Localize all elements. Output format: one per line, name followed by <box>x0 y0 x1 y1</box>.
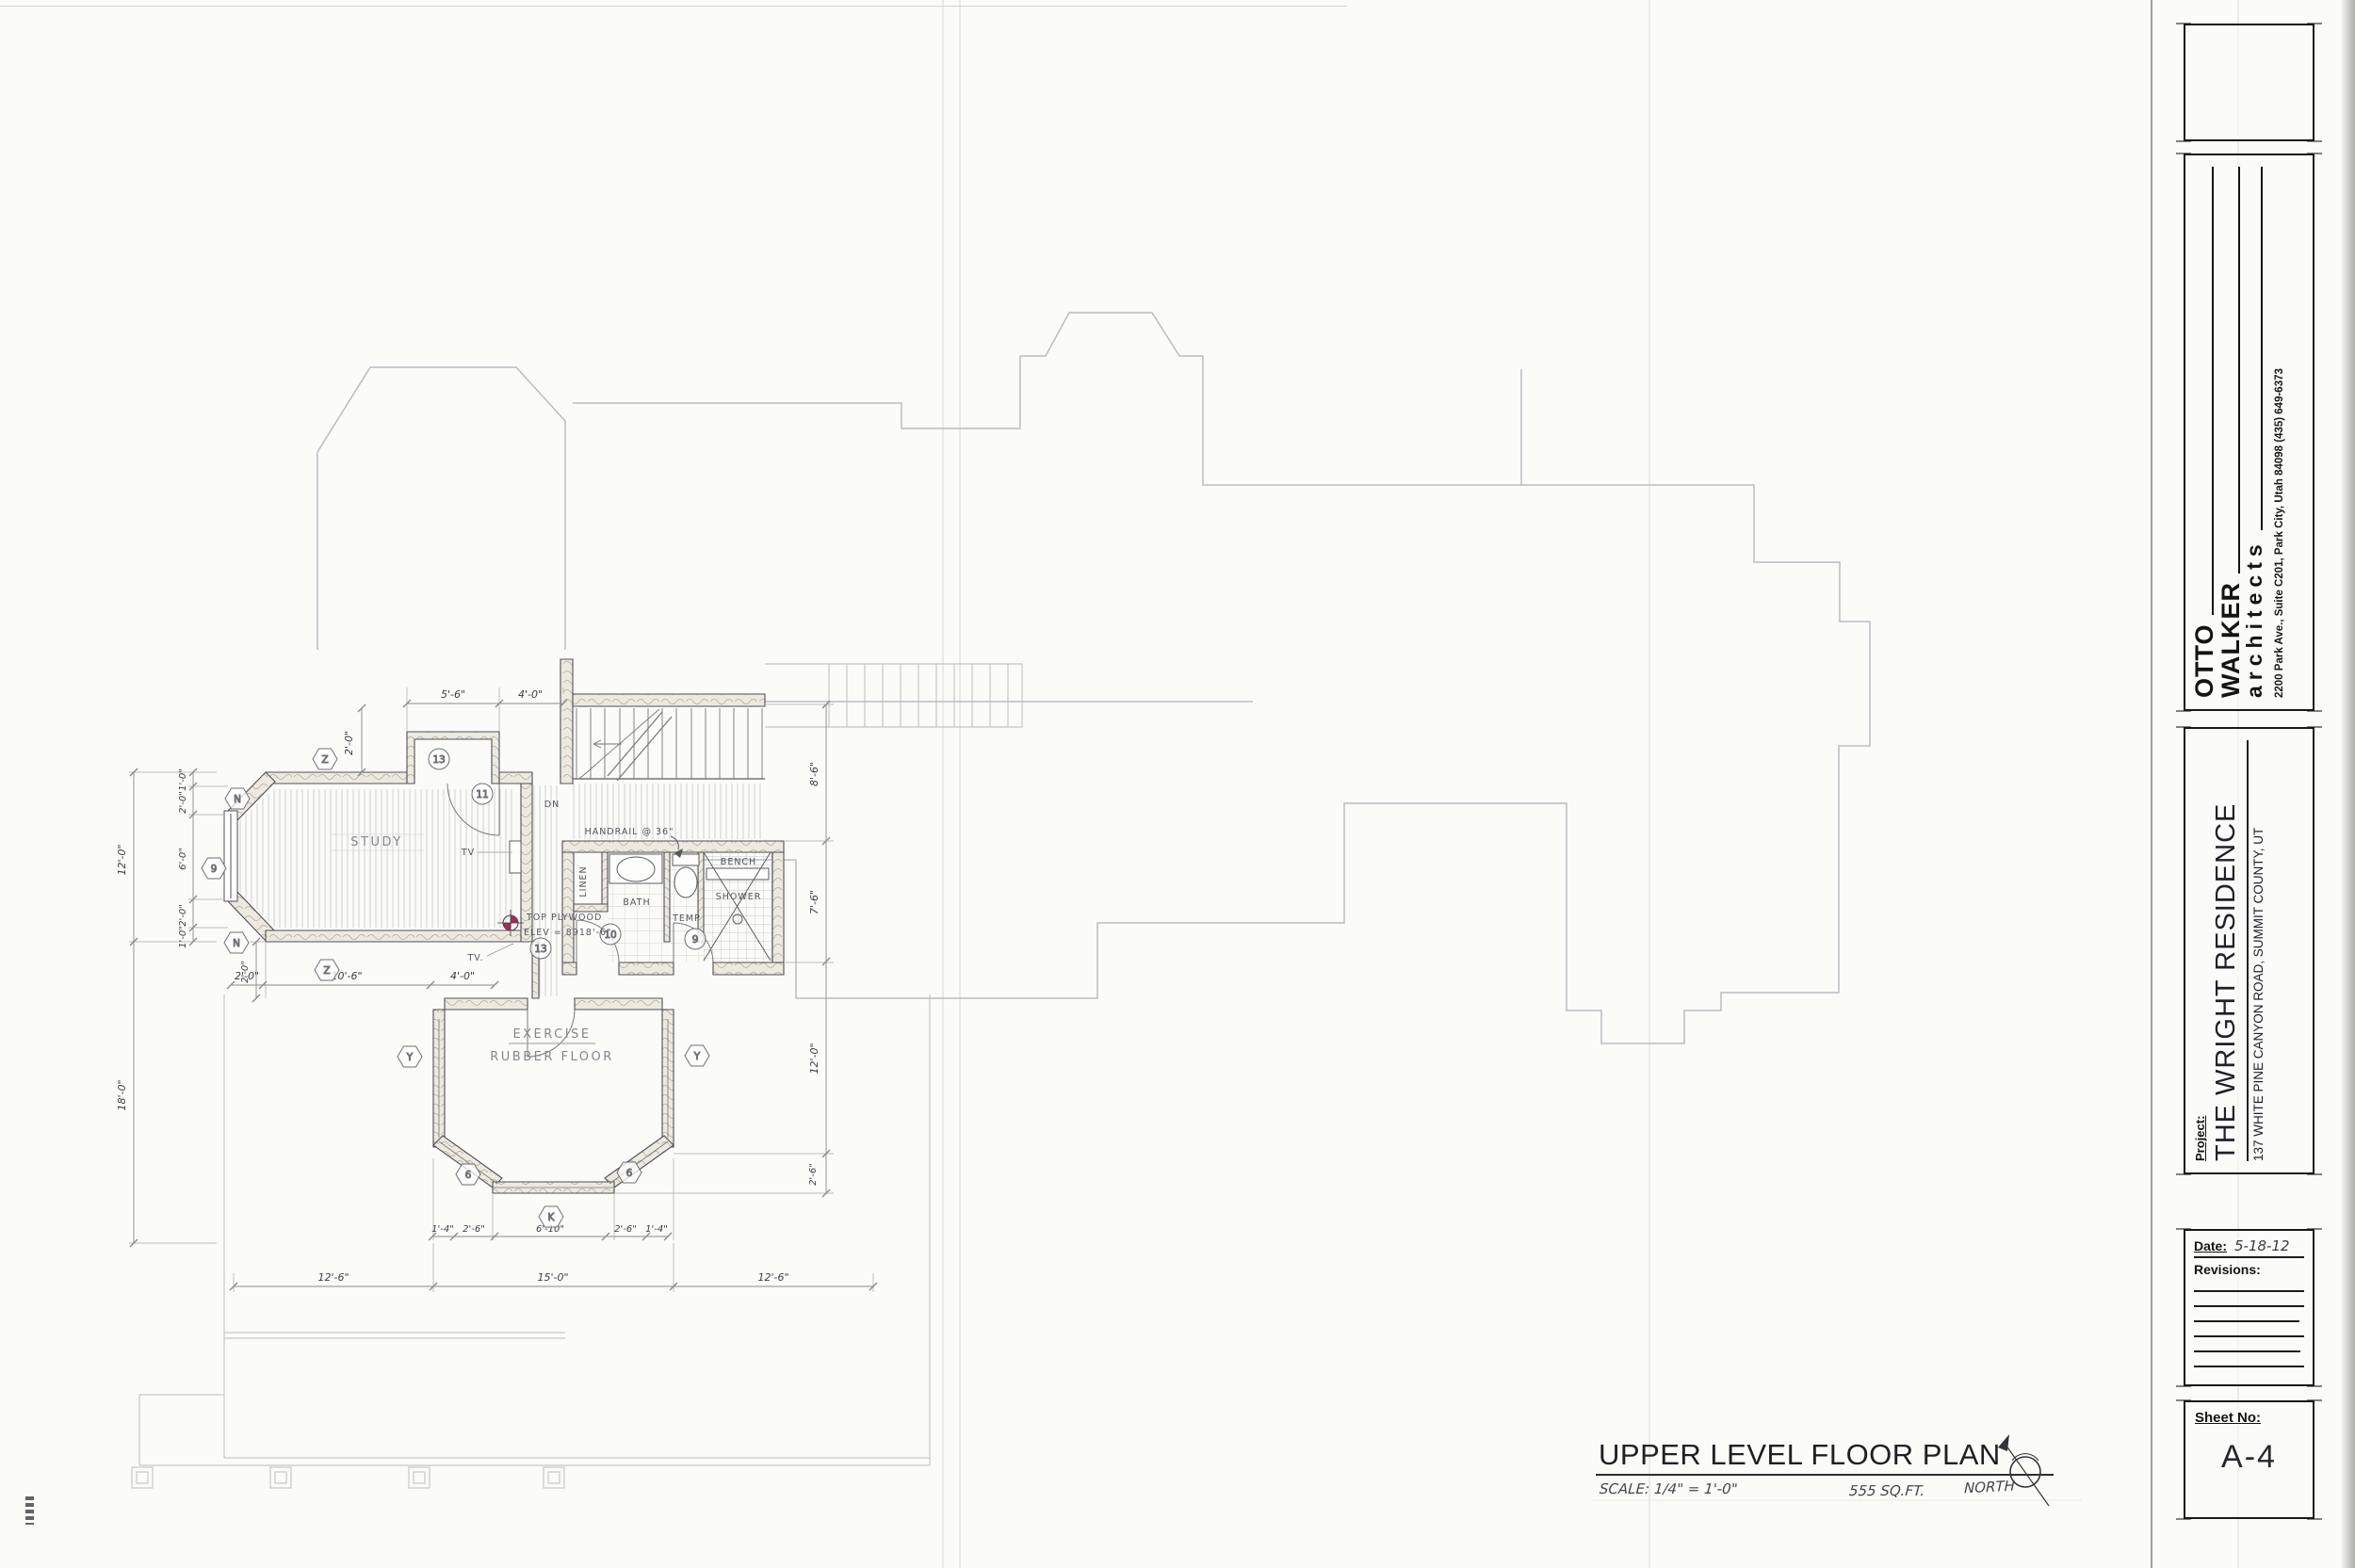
revision-line <box>2194 1337 2300 1352</box>
firm-rule <box>2212 167 2214 615</box>
dim-label: 2'-0" <box>343 731 355 755</box>
handrail-note: HANDRAIL @ 36" <box>585 827 674 837</box>
keynote-hex: K <box>548 1212 556 1223</box>
tv-niche <box>510 841 521 873</box>
area-note: 555 SQ.FT. <box>1848 1482 1925 1499</box>
scale-note: SCALE: 1/4" = 1'-0" <box>1599 1480 1738 1497</box>
dim-label: 15'-0" <box>537 1271 568 1284</box>
dim-label: 12'-6" <box>317 1271 349 1284</box>
dim-label: 4'-0" <box>518 688 543 701</box>
keynote-hex: 9 <box>211 864 218 875</box>
dim-label: 2'-6" <box>614 1224 637 1235</box>
north-label: NORTH <box>1964 1478 2015 1497</box>
dim-label: 1'-0" <box>178 926 188 948</box>
revisions-label: Revisions: <box>2194 1262 2304 1277</box>
tv-note: TV. <box>466 953 483 963</box>
linen-label: LINEN <box>578 865 589 897</box>
keynote-circle: 11 <box>476 789 488 800</box>
dim-label: 2'-0" <box>178 904 188 927</box>
room-label-bath: BATH <box>623 897 650 908</box>
keynote-circle: 13 <box>432 754 445 766</box>
floor-plan-drawing: 5'-6" 4'-0" 2'-0" 12'-0" 18'-0" 1'-0" 2'… <box>0 0 2355 1568</box>
titleblock-firm-box: OTTO WALKER architects 2200 Park Ave., S… <box>2184 154 2314 711</box>
firm-rule <box>2261 167 2263 530</box>
titleblock-stamp-box <box>2184 24 2314 141</box>
dim-label: 1'-0" <box>178 768 188 791</box>
dn-label: DN <box>544 800 560 810</box>
keynote-hex: Z <box>321 754 328 766</box>
dim-label: 12'-0" <box>116 844 128 875</box>
room-label-exercise-2: RUBBER FLOOR <box>490 1050 614 1064</box>
date-label: Date: <box>2194 1238 2227 1253</box>
sheet-no-value: A-4 <box>2195 1439 2303 1476</box>
drawing-sheet: 5'-6" 4'-0" 2'-0" 12'-0" 18'-0" 1'-0" 2'… <box>0 0 2355 1568</box>
elev-note-1: TOP PLYWOOD <box>526 913 602 923</box>
dim-label: 6'-0" <box>178 848 188 870</box>
dim-label: 12'-6" <box>757 1271 788 1284</box>
keynote-hex: Y <box>693 1051 701 1062</box>
dim-label: 2'-0" <box>235 970 259 982</box>
keynote-hex: 6 <box>465 1170 472 1181</box>
toilet-tank <box>673 854 699 865</box>
dim-label: 7'-6" <box>808 890 820 914</box>
dim-label: 2'-0" <box>178 791 188 814</box>
firm-address: 2200 Park Ave., Suite C201, Park City, U… <box>2274 167 2285 698</box>
keynote-hex: Y <box>406 1052 414 1063</box>
firm-rule <box>2238 167 2240 574</box>
dim-label: 8'-6" <box>808 762 820 786</box>
stair <box>573 708 765 781</box>
project-label: Project: <box>2193 740 2207 1161</box>
revision-line <box>2194 1292 2304 1307</box>
dim-label: 2'-6" <box>808 1163 819 1186</box>
sheet-no-label: Sheet No: <box>2195 1410 2303 1426</box>
keynote-hex: 6 <box>626 1168 633 1179</box>
tv-label: TV <box>461 848 475 858</box>
dim-label: 5'-6" <box>441 688 465 701</box>
stair-lower-run <box>765 664 1022 727</box>
dimension-texts: 5'-6" 4'-0" 2'-0" 12'-0" 18'-0" 1'-0" 2'… <box>116 688 820 1284</box>
revision-line <box>2194 1277 2304 1292</box>
firm-name-line1: OTTO <box>2191 623 2217 698</box>
firm-name-line3: architects <box>2244 539 2266 698</box>
keynote-circle: 9 <box>692 934 699 946</box>
dim-label: 4'-0" <box>450 970 475 982</box>
keynote-circle: 13 <box>534 944 546 955</box>
dim-label: 2'-6" <box>463 1224 485 1235</box>
drawing-title: UPPER LEVEL FLOOR PLAN <box>1599 1438 2001 1472</box>
shower-label: SHOWER <box>716 892 762 902</box>
titleblock-date-box: Date: 5-18-12 Revisions: <box>2184 1229 2314 1386</box>
firm-name-line2: WALKER <box>2217 582 2244 698</box>
project-address: 137 WHITE PINE CANYON ROAD, SUMMIT COUNT… <box>2247 740 2266 1161</box>
toilet-bowl <box>674 867 697 897</box>
dim-label: 12'-0" <box>808 1043 820 1074</box>
room-label-exercise: EXERCISE <box>512 1027 591 1042</box>
dim-label: 1'-4" <box>645 1224 668 1235</box>
temp-label: TEMP <box>672 913 701 924</box>
project-name: THE WRIGHT RESIDENCE <box>2211 740 2242 1161</box>
elev-note-2: ELEV = 8918'-6" <box>524 928 611 938</box>
keynote-hex: N <box>233 938 240 949</box>
date-value: 5-18-12 <box>2234 1237 2290 1254</box>
dim-label: 1'-4" <box>431 1224 454 1235</box>
dim-label: 18'-0" <box>116 1079 128 1110</box>
keynote-hex: N <box>234 794 241 805</box>
keynote-hex: Z <box>323 965 330 977</box>
titleblock-project-box: Project: THE WRIGHT RESIDENCE 137 WHITE … <box>2184 727 2314 1174</box>
titleblock-sheetno-box: Sheet No: A-4 <box>2184 1400 2314 1519</box>
revision-line <box>2194 1322 2304 1337</box>
room-label-study: STUDY <box>350 835 402 849</box>
bench-label: BENCH <box>721 857 756 867</box>
sink <box>617 857 655 881</box>
revision-line <box>2194 1352 2304 1367</box>
revision-line <box>2194 1307 2299 1322</box>
